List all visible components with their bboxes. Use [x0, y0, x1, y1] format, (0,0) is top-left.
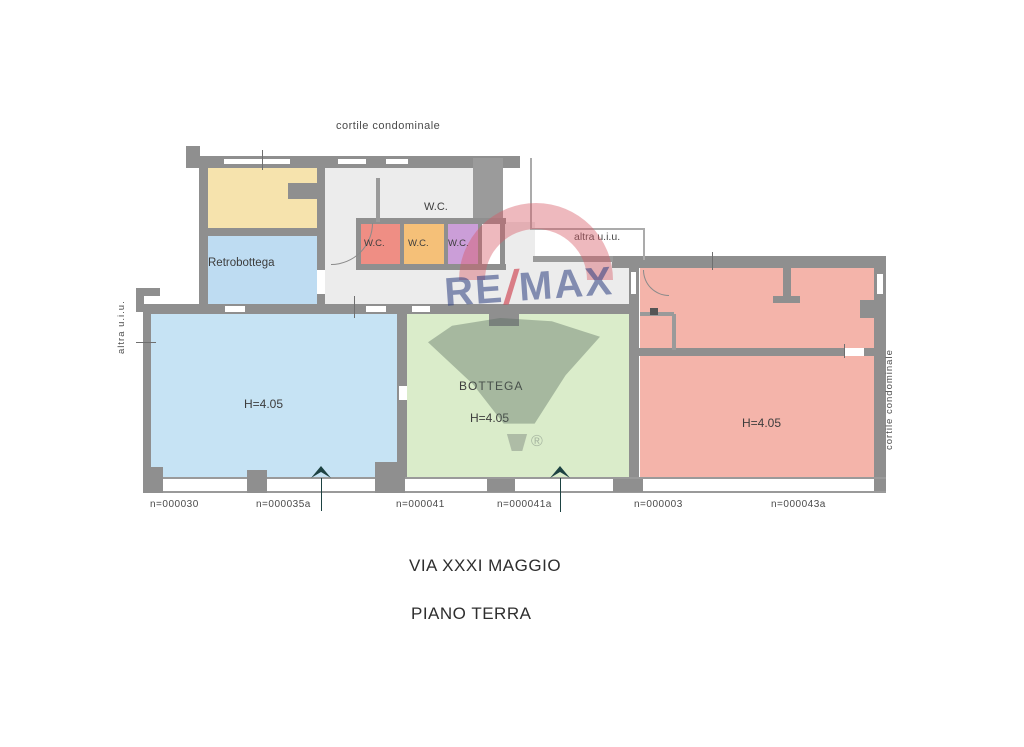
wall [203, 228, 321, 236]
wc-main-label: W.C. [424, 201, 448, 213]
wall [864, 348, 874, 356]
parcel-number: n=000035a [256, 499, 311, 510]
floor-plan-page: ® RE/MAX cortile condominale W.C. W.C. W… [0, 0, 1024, 747]
wall [612, 256, 886, 268]
door-opening [225, 306, 245, 312]
room-shop-left [151, 313, 401, 477]
wall-pillar [143, 467, 163, 493]
floor-title: PIANO TERRA [411, 604, 531, 624]
courtyard-right-label: cortile condominale [884, 348, 895, 450]
parcel-number: n=000003 [634, 499, 683, 510]
wall [143, 304, 151, 493]
street-title: VIA XXXI MAGGIO [409, 556, 561, 576]
wall-pillar [783, 268, 791, 298]
survey-tick [844, 344, 845, 358]
survey-tick [354, 296, 355, 318]
remax-watermark-logo: RE/MAX [442, 250, 615, 317]
parcel-number: n=000043a [771, 499, 826, 510]
room-retrobottega [208, 236, 318, 304]
wc-1-label: W.C. [364, 238, 385, 249]
wall-pillar [375, 462, 405, 493]
window [877, 274, 883, 294]
wall-pillar [487, 479, 515, 492]
wall [629, 268, 639, 477]
wc-2-label: W.C. [408, 238, 429, 249]
door-opening [366, 306, 386, 312]
door-opening [317, 270, 325, 294]
wall [186, 146, 200, 158]
survey-tick [136, 342, 156, 343]
wall-pillar [247, 470, 267, 493]
height-label-left: H=4.05 [244, 397, 283, 411]
height-label-right: H=4.05 [742, 416, 781, 430]
wall [376, 178, 380, 222]
remax-text-slash: / [502, 260, 521, 314]
entrance-arrow-stem [560, 478, 561, 512]
wall-pillar [613, 479, 643, 492]
wall [672, 314, 676, 350]
survey-tick [262, 150, 263, 170]
wall [400, 224, 404, 264]
registered-trademark-icon: ® [531, 433, 543, 451]
window [386, 159, 408, 164]
retrobottega-label: Retrobottega [208, 257, 275, 269]
wall [288, 183, 320, 199]
parcel-number: n=000030 [150, 499, 199, 510]
other-unit-left-label: altra u.i.u. [116, 294, 127, 354]
courtyard-top-label: cortile condominale [336, 120, 440, 132]
remax-text-re: RE [443, 267, 506, 315]
wall [136, 288, 144, 312]
boundary-line [643, 228, 645, 260]
remax-text-max: MAX [517, 259, 615, 310]
wall-pillar [860, 300, 874, 318]
wall-pillar [773, 296, 800, 303]
parcel-number: n=000041a [497, 499, 552, 510]
window [224, 159, 290, 164]
survey-tick [712, 252, 713, 270]
wall-pillar [650, 308, 658, 315]
door-opening [631, 272, 636, 294]
parcel-number: n=000041 [396, 499, 445, 510]
door-opening [399, 386, 407, 400]
window [338, 159, 366, 164]
wall [630, 348, 844, 356]
door-opening [412, 306, 430, 312]
entrance-arrow-stem [321, 478, 322, 511]
